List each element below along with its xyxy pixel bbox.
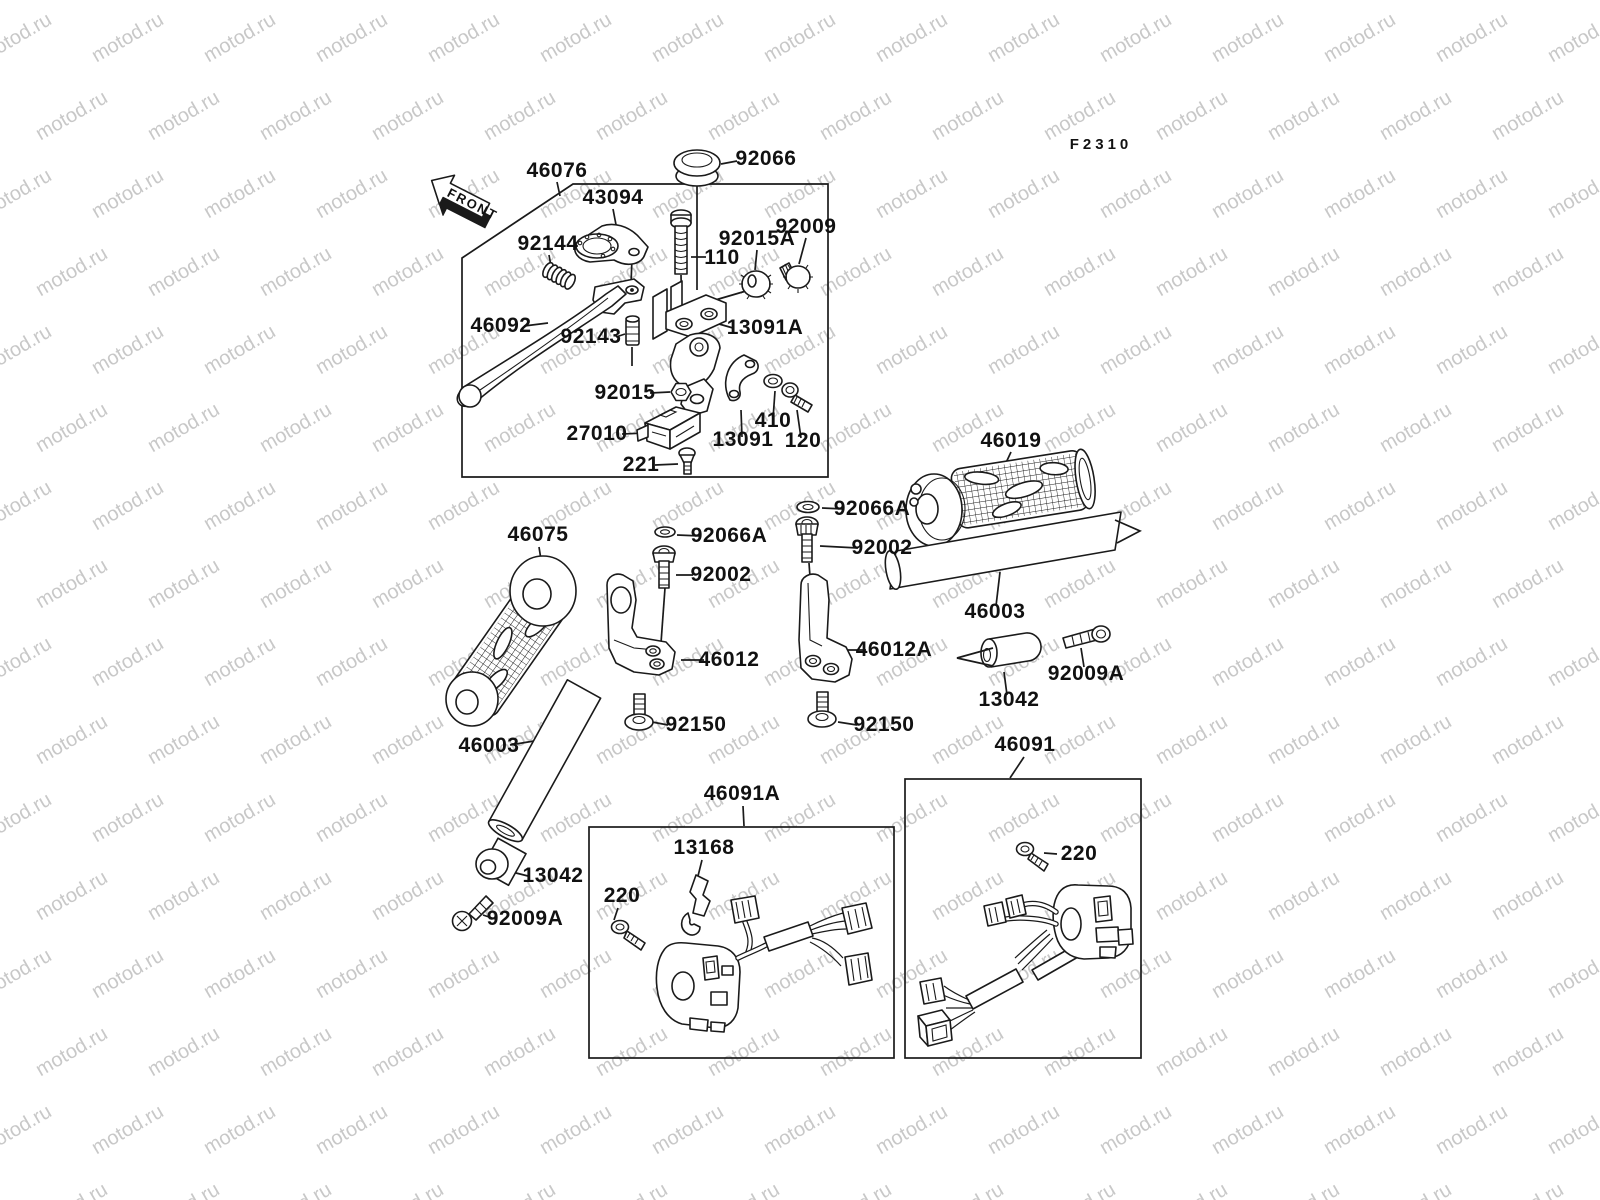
part-label-13042-right: 13042 (979, 688, 1040, 711)
part-label-46091: 46091 (995, 733, 1056, 756)
adjuster-92015A (739, 271, 773, 299)
screw-220-right (1017, 843, 1049, 872)
washer-410 (764, 375, 782, 388)
brake-switch-27010 (637, 407, 700, 449)
part-label-220-left: 220 (604, 884, 641, 907)
part-label-92009: 92009 (776, 215, 837, 238)
nut-92015 (671, 384, 691, 401)
part-label-46076: 46076 (527, 159, 588, 182)
part-label-92150-right: 92150 (854, 713, 915, 736)
screw-92002-left (653, 546, 675, 588)
bolt-110 (671, 210, 691, 274)
part-label-92015: 92015 (595, 381, 656, 404)
part-label-13091A: 13091A (727, 316, 804, 339)
left-switch-housing (656, 943, 740, 1032)
part-label-13042-left: 13042 (523, 864, 584, 887)
screw-92150-right (808, 692, 836, 727)
part-label-92009A-right: 92009A (1048, 662, 1125, 685)
part-label-92150-left: 92150 (666, 713, 727, 736)
collar-13042-left (476, 838, 526, 885)
part-label-92002-left: 92002 (691, 563, 752, 586)
bushing-92143 (626, 316, 639, 345)
bracket-46012A (799, 574, 852, 682)
screw-92002-right (796, 517, 818, 562)
collar-13042-right (957, 633, 1041, 667)
part-label-46075: 46075 (508, 523, 569, 546)
front-arrow: FRONT (420, 167, 505, 237)
washer-92066A-right (797, 502, 819, 513)
figure-code: F2310 (1070, 136, 1133, 153)
washer-92066A-left (655, 527, 675, 537)
bolt-92009A-right (1063, 626, 1110, 648)
part-label-220-right: 220 (1061, 842, 1098, 865)
part-label-46012: 46012 (699, 648, 760, 671)
reservoir-cap-92066 (674, 150, 720, 186)
part-label-92144: 92144 (518, 232, 579, 255)
part-label-46003-right: 46003 (965, 600, 1026, 623)
part-label-92066A-left: 92066A (691, 524, 768, 547)
screw-220-left (612, 921, 646, 951)
part-label-221: 221 (623, 453, 660, 476)
part-label-46003-left: 46003 (459, 734, 520, 757)
spring-92144 (541, 261, 578, 291)
part-label-27010: 27010 (567, 422, 628, 445)
part-label-46019: 46019 (981, 429, 1042, 452)
part-label-110: 110 (704, 246, 739, 269)
clamp-13091 (726, 355, 758, 401)
parts-diagram: F2310 FRONT (0, 0, 1600, 1200)
screw-221 (679, 448, 695, 474)
diagram-page: { "figure_code": "F2310", "front_arrow":… (0, 0, 1600, 1200)
part-label-92009A-left: 92009A (487, 907, 564, 930)
part-label-92002-right: 92002 (852, 536, 913, 559)
part-label-46092: 46092 (471, 314, 532, 337)
part-label-92066: 92066 (736, 147, 797, 170)
bolt-120 (782, 383, 812, 412)
right-switch-housing (1032, 885, 1133, 980)
part-label-92066A-right: 92066A (834, 497, 911, 520)
part-label-120: 120 (785, 429, 822, 452)
part-label-46091A: 46091A (704, 782, 781, 805)
screw-92150-left (625, 694, 653, 730)
part-label-43094: 43094 (583, 186, 644, 209)
screw-92009 (780, 263, 813, 293)
lever-holder-43094 (575, 224, 648, 264)
left-box-wiring (731, 896, 872, 985)
part-label-46012A: 46012A (856, 638, 933, 661)
part-label-13168: 13168 (674, 836, 735, 859)
choke-lever-13168 (682, 875, 710, 935)
part-label-92143: 92143 (561, 325, 622, 348)
